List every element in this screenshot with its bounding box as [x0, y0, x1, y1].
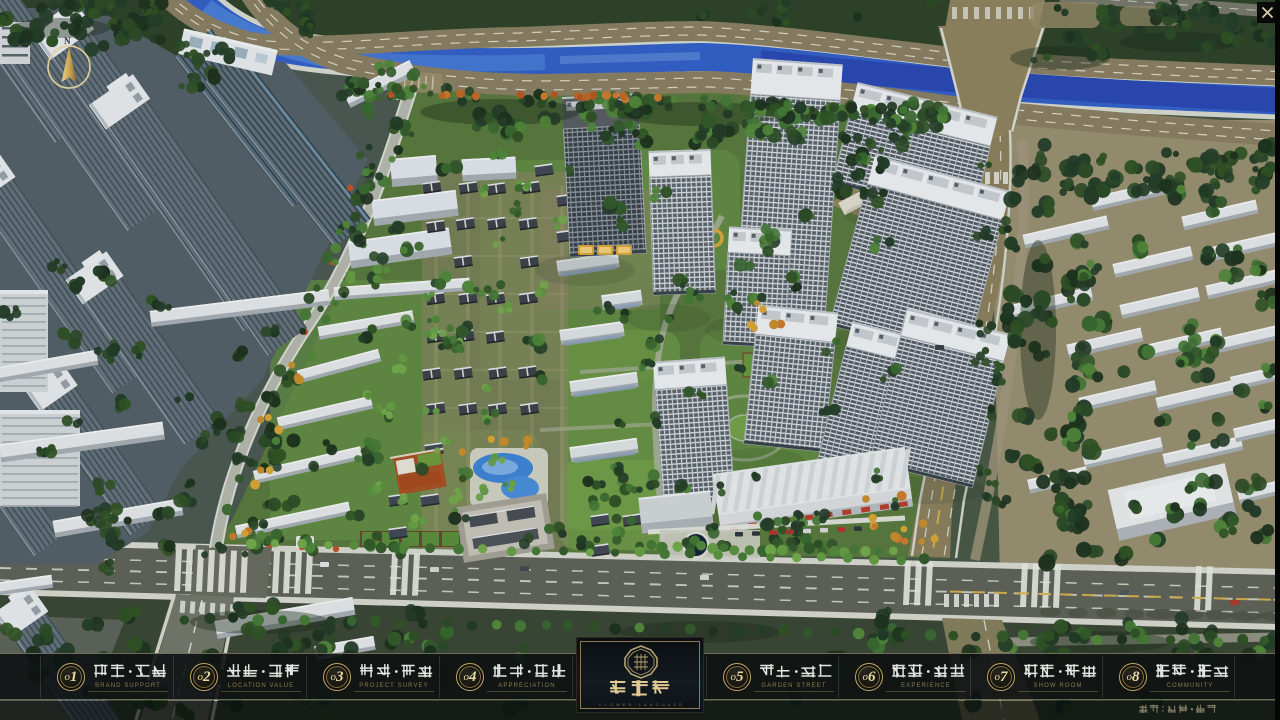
svg-text:N: N	[64, 36, 71, 46]
